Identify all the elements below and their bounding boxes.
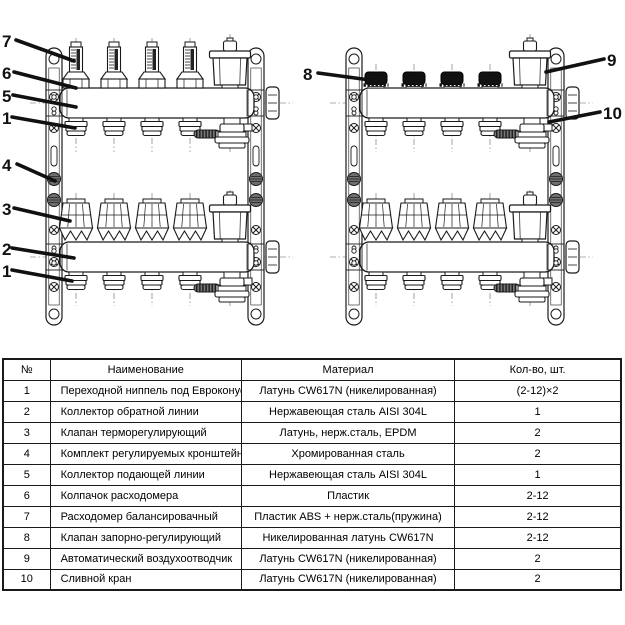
callout-number: 5 xyxy=(2,87,11,106)
table-cell: Расходомер балансировачный xyxy=(50,506,241,527)
drain-valve xyxy=(194,272,252,302)
drain-valve xyxy=(194,118,252,148)
table-cell: 5 xyxy=(3,464,50,485)
manifold-technical-drawing: 7 6 5 1 4 3 2 1 xyxy=(0,0,625,352)
table-row: 5Коллектор подающей линииНержавеющая ста… xyxy=(3,464,621,485)
flow-meter xyxy=(177,42,203,88)
table-row: 10Сливной кранЛатунь CW617N (никелирован… xyxy=(3,569,621,590)
euroconus-nipple xyxy=(441,118,463,136)
col-header-name: Наименование xyxy=(50,359,241,380)
table-row: 9Автоматический воздухоотводчикЛатунь CW… xyxy=(3,548,621,569)
thermo-valve xyxy=(436,199,469,240)
callout-number: 2 xyxy=(2,240,11,259)
euroconus-nipple xyxy=(103,118,125,136)
table-row: 4Комплект регулируемых кронштейновХромир… xyxy=(3,443,621,464)
table-header-row: № Наименование Материал Кол-во, шт. xyxy=(3,359,621,380)
air-vent xyxy=(210,38,251,88)
thermo-valve xyxy=(98,199,131,240)
table-cell: Пластик xyxy=(241,485,454,506)
table-cell: Латунь CW617N (никелированная) xyxy=(241,380,454,401)
thermo-valve xyxy=(174,199,207,240)
euroconus-nipple xyxy=(141,272,163,290)
table-cell: Сливной кран xyxy=(50,569,241,590)
table-row: 8Клапан запорно-регулирующийНикелированн… xyxy=(3,527,621,548)
table-cell: 2-12 xyxy=(455,506,621,527)
euroconus-nipple xyxy=(103,272,125,290)
table-cell: 10 xyxy=(3,569,50,590)
table-cell: 6 xyxy=(3,485,50,506)
thermo-valve xyxy=(360,199,393,240)
table-cell: 1 xyxy=(455,401,621,422)
table-cell: Автоматический воздухоотводчик xyxy=(50,548,241,569)
table-cell: Колпачок расходомера xyxy=(50,485,241,506)
col-header-material: Материал xyxy=(241,359,454,380)
callout-number: 6 xyxy=(2,64,11,83)
table-cell: 2 xyxy=(455,443,621,464)
table-cell: 2 xyxy=(455,548,621,569)
table-cell: 2-12 xyxy=(455,485,621,506)
parts-specification-table: № Наименование Материал Кол-во, шт. 1Пер… xyxy=(2,358,622,591)
end-plug xyxy=(566,241,579,273)
table-cell: Нержавеющая сталь AISI 304L xyxy=(241,401,454,422)
return-manifold-bar xyxy=(360,242,554,272)
return-manifold-bar xyxy=(60,242,254,272)
table-cell: Клапан терморегулирующий xyxy=(50,422,241,443)
table-cell: Нержавеющая сталь AISI 304L xyxy=(241,464,454,485)
callout-number: 9 xyxy=(607,51,616,70)
callout-leader-line xyxy=(16,40,74,61)
end-plug xyxy=(266,241,279,273)
thermo-valve xyxy=(474,199,507,240)
table-cell: Клапан запорно-регулирующий xyxy=(50,527,241,548)
callout-number: 3 xyxy=(2,200,11,219)
callout-number: 1 xyxy=(2,262,11,281)
callout-leader-line xyxy=(12,270,72,281)
table-cell: Никелированная латунь CW617N xyxy=(241,527,454,548)
table-cell: 4 xyxy=(3,443,50,464)
table-cell: 2 xyxy=(3,401,50,422)
table-cell: 1 xyxy=(3,380,50,401)
shutoff-valve-cap xyxy=(402,72,427,88)
end-plug xyxy=(266,87,279,119)
thermo-valve xyxy=(136,199,169,240)
table-cell: 8 xyxy=(3,527,50,548)
shutoff-valve-cap xyxy=(478,72,503,88)
catalog-page: 7 6 5 1 4 3 2 1 xyxy=(0,0,625,625)
callout-number: 10 xyxy=(603,104,622,123)
flow-meter xyxy=(101,42,127,88)
table-cell: 2 xyxy=(455,569,621,590)
table-row: 3Клапан терморегулирующийЛатунь, нерж.ст… xyxy=(3,422,621,443)
manifold-diagram-shutoff-version xyxy=(330,34,593,325)
euroconus-nipple xyxy=(403,118,425,136)
drain-valve xyxy=(494,272,552,302)
table-cell: Латунь CW617N (никелированная) xyxy=(241,569,454,590)
air-vent xyxy=(510,192,551,242)
table-cell: Пластик ABS + нерж.сталь(пружина) xyxy=(241,506,454,527)
col-header-quantity: Кол-во, шт. xyxy=(455,359,621,380)
callout-7: 7 xyxy=(2,32,74,61)
table-cell: 9 xyxy=(3,548,50,569)
table-cell: Комплект регулируемых кронштейнов xyxy=(50,443,241,464)
supply-manifold-bar xyxy=(60,88,254,118)
table-cell: 1 xyxy=(455,464,621,485)
callout-number: 4 xyxy=(2,156,12,175)
flow-meter xyxy=(139,42,165,88)
euroconus-nipple xyxy=(441,272,463,290)
euroconus-nipple xyxy=(403,272,425,290)
callout-number: 8 xyxy=(303,65,312,84)
callout-number: 1 xyxy=(2,109,11,128)
table-cell: Коллектор обратной линии xyxy=(50,401,241,422)
table-cell: Латунь, нерж.сталь, EPDM xyxy=(241,422,454,443)
end-plug xyxy=(566,87,579,119)
table-row: 1Переходной ниппель под ЕвроконусЛатунь … xyxy=(3,380,621,401)
table-row: 7Расходомер балансировачныйПластик ABS +… xyxy=(3,506,621,527)
table-cell: 7 xyxy=(3,506,50,527)
table-cell: 2 xyxy=(455,422,621,443)
drain-valve xyxy=(494,118,552,148)
euroconus-nipple xyxy=(365,118,387,136)
thermo-valve xyxy=(398,199,431,240)
table-row: 2Коллектор обратной линииНержавеющая ста… xyxy=(3,401,621,422)
table-cell: Переходной ниппель под Евроконус xyxy=(50,380,241,401)
callout-number: 7 xyxy=(2,32,11,51)
euroconus-nipple xyxy=(141,118,163,136)
air-vent xyxy=(510,38,551,88)
col-header-number: № xyxy=(3,359,50,380)
table-cell: (2-12)×2 xyxy=(455,380,621,401)
table-cell: Коллектор подающей линии xyxy=(50,464,241,485)
table-cell: Хромированная сталь xyxy=(241,443,454,464)
air-vent xyxy=(210,192,251,242)
table-cell: 3 xyxy=(3,422,50,443)
shutoff-valve-cap xyxy=(440,72,465,88)
parts-table-body: 1Переходной ниппель под ЕвроконусЛатунь … xyxy=(3,380,621,590)
table-cell: Латунь CW617N (никелированная) xyxy=(241,548,454,569)
table-cell: 2-12 xyxy=(455,527,621,548)
table-row: 6Колпачок расходомераПластик2-12 xyxy=(3,485,621,506)
flow-meter xyxy=(63,42,89,88)
euroconus-nipple xyxy=(365,272,387,290)
supply-manifold-bar xyxy=(360,88,554,118)
